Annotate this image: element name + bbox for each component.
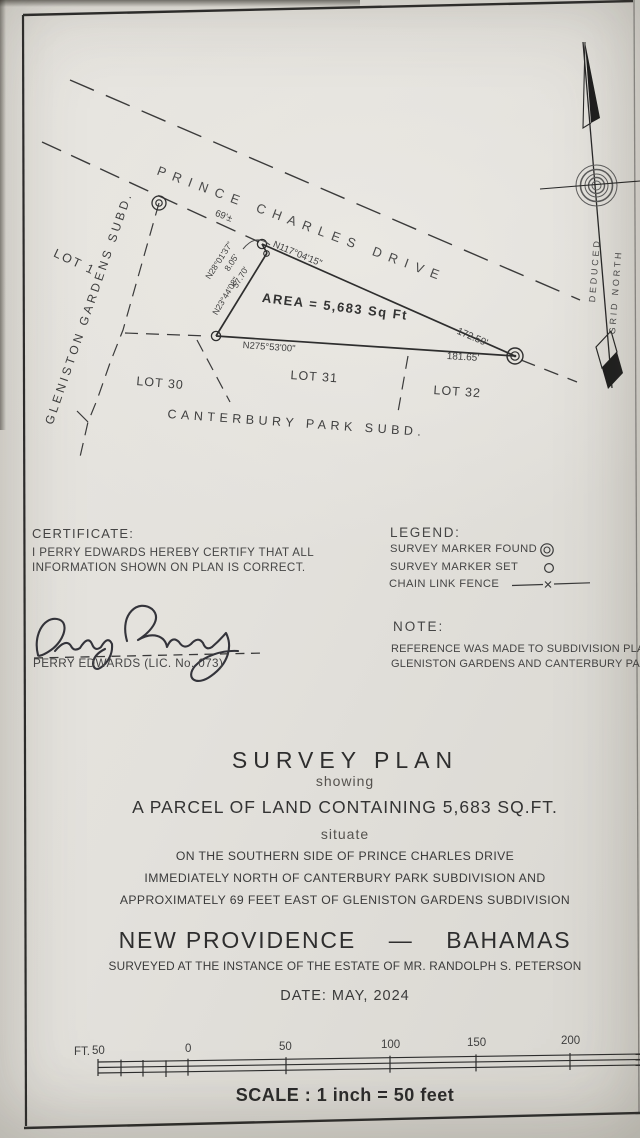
certificate-heading: CERTIFICATE: <box>32 527 134 540</box>
north-arrow-feather-fill <box>602 352 623 389</box>
scale-tick-100: 100 <box>381 1040 400 1052</box>
certificate-line-2: INFORMATION SHOWN ON PLAN IS CORRECT. <box>32 562 306 574</box>
legend-symbol-marker-found <box>541 544 553 556</box>
plan-location-line-1: ON THE SOUTHERN SIDE OF PRINCE CHARLES D… <box>40 850 640 862</box>
fence-corner-tick <box>77 411 88 422</box>
distance-south-line: 181.65' <box>446 352 479 364</box>
scale-tick-50: 50 <box>279 1042 292 1054</box>
scale-unit-label: FT. <box>74 1047 90 1059</box>
plan-situate: situate <box>40 827 640 841</box>
scale-caption: SCALE : 1 inch = 50 feet <box>40 1086 640 1104</box>
note-line-1: REFERENCE WAS MADE TO SUBDIVISION PLANS <box>391 644 640 655</box>
plan-parcel-line: A PARCEL OF LAND CONTAINING 5,683 SQ.FT. <box>40 799 640 817</box>
plan-location-line-2: IMMEDIATELY NORTH OF CANTERBURY PARK SUB… <box>40 872 640 884</box>
certificate-signed-name: PERRY EDWARDS (LIC. No. 073) <box>33 658 223 670</box>
plan-location-line-3: APPROXIMATELY 69 FEET EAST OF GLENISTON … <box>40 894 640 906</box>
plan-jurisdiction: NEW PROVIDENCE — BAHAMAS <box>40 929 640 952</box>
plan-surveyed-for: SURVEYED AT THE INSTANCE OF THE ESTATE O… <box>40 961 640 973</box>
photo-edge-shadow-top <box>0 0 360 7</box>
scale-tick-150: 150 <box>467 1038 486 1050</box>
scale-bar-graphic <box>98 1053 640 1077</box>
survey-plan-sheet: P R I N C E C H A R L E S D R I V E 69'±… <box>0 0 640 1138</box>
note-line-2: GLENISTON GARDENS AND CANTERBURY PARK <box>391 659 640 670</box>
note-heading: NOTE: <box>393 620 444 634</box>
scale-tick-50-left: 50 <box>92 1046 105 1058</box>
lot-32-label: LOT 32 <box>433 384 481 400</box>
legend-symbol-chain-link-fence <box>512 582 590 588</box>
legend-heading: LEGEND: <box>390 526 460 540</box>
legend-item-marker-set: SURVEY MARKER SET <box>390 562 518 573</box>
certificate-line-1: I PERRY EDWARDS HEREBY CERTIFY THAT ALL <box>32 547 314 559</box>
lot-31-label: LOT 31 <box>290 369 338 385</box>
plan-title: SURVEY PLAN <box>40 749 640 772</box>
plan-date: DATE: MAY, 2024 <box>40 989 640 1004</box>
legend-symbol-marker-set <box>545 564 554 573</box>
plan-showing: showing <box>40 774 640 788</box>
photo-edge-shadow-left <box>0 0 6 430</box>
scale-tick-0: 0 <box>185 1044 191 1056</box>
north-arrow <box>540 42 640 389</box>
legend-item-marker-found: SURVEY MARKER FOUND <box>390 544 537 555</box>
scale-tick-200: 200 <box>561 1036 580 1048</box>
legend-item-chain-link-fence: CHAIN LINK FENCE <box>389 579 499 590</box>
north-arrow-head <box>585 42 600 123</box>
